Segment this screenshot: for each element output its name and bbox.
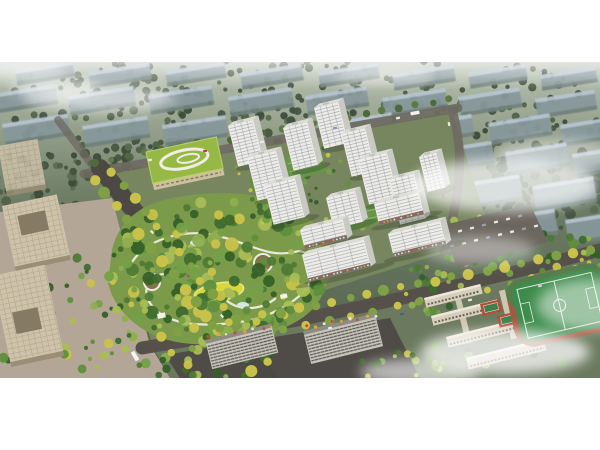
street-tree [430, 277, 440, 287]
tree [242, 242, 253, 253]
street-tree [312, 302, 321, 311]
tree [554, 123, 559, 128]
street-tree [220, 303, 228, 311]
shop-awning [263, 327, 266, 330]
tree [112, 306, 121, 315]
tree [124, 297, 130, 303]
street-tree [586, 245, 595, 254]
tree [69, 168, 77, 176]
street-tree [362, 290, 371, 299]
tree [228, 291, 235, 298]
street-tree [499, 262, 510, 273]
shop-awning [243, 330, 246, 333]
street-tree [347, 294, 355, 302]
tree [224, 215, 235, 226]
street-tree [517, 260, 525, 268]
tree [90, 302, 98, 310]
street-tree [397, 283, 404, 290]
street-tree [263, 358, 271, 366]
tree [581, 250, 587, 256]
tree [65, 284, 70, 289]
street-tree [189, 323, 199, 333]
tree [252, 263, 266, 277]
tree [191, 284, 197, 290]
shop-awning [314, 325, 317, 328]
tree [293, 240, 301, 248]
tree [246, 297, 252, 303]
tree [85, 270, 89, 274]
street-tree [168, 349, 176, 357]
tree [409, 302, 416, 309]
tree [410, 352, 416, 358]
tree [252, 235, 259, 242]
street-tree [394, 302, 402, 310]
tree [157, 323, 162, 328]
tree [429, 307, 437, 315]
street-tree [483, 267, 492, 276]
street-tree [145, 242, 157, 254]
street-tree [551, 251, 561, 261]
tree [565, 209, 576, 220]
tree [350, 109, 357, 116]
tree [73, 253, 82, 262]
tree [522, 102, 527, 107]
tree [87, 279, 95, 287]
tree [136, 297, 140, 301]
tree [208, 268, 216, 276]
street-tree [112, 201, 122, 211]
tree [291, 262, 297, 268]
tree [213, 253, 222, 262]
tree [303, 113, 308, 118]
street-tree [225, 318, 233, 326]
tree [271, 291, 277, 297]
street-tree [245, 365, 257, 377]
street-tree [141, 208, 150, 217]
tree [179, 112, 186, 119]
tree [78, 273, 85, 280]
tree [302, 179, 307, 184]
tree [189, 371, 197, 379]
tree [139, 261, 145, 267]
tree [64, 166, 68, 170]
tree [225, 251, 235, 261]
street-tree [445, 95, 452, 102]
tree [184, 327, 189, 332]
street-tree [411, 101, 418, 108]
tree [345, 181, 351, 187]
tree [88, 357, 92, 361]
street-tree [208, 321, 217, 330]
tree [559, 226, 563, 230]
tree [57, 163, 63, 169]
tree [326, 153, 331, 158]
shop-awning [366, 315, 369, 318]
street-tree [430, 100, 436, 106]
tree [299, 98, 304, 103]
tree [123, 258, 133, 268]
tree [414, 265, 421, 272]
street-tree [156, 255, 168, 267]
tree [132, 311, 141, 320]
shop-awning [225, 333, 227, 335]
street-tree [169, 269, 178, 278]
tree [590, 206, 598, 214]
tree [142, 307, 148, 313]
tree [286, 306, 295, 315]
tree [192, 234, 205, 247]
shop-awning [375, 315, 378, 318]
tree [117, 111, 123, 117]
tree [150, 267, 156, 273]
tree [112, 253, 117, 258]
tree [104, 271, 114, 281]
tree [84, 346, 88, 350]
tree [137, 362, 143, 368]
street-tree [164, 235, 172, 243]
tree [160, 357, 167, 364]
tree [266, 115, 272, 121]
tree [425, 265, 430, 270]
tree [326, 169, 332, 175]
tree [131, 287, 137, 293]
tree [580, 258, 584, 262]
street-tree [395, 105, 403, 113]
street-tree [568, 248, 578, 258]
tree [111, 144, 119, 152]
tree [359, 358, 365, 364]
street-tree [279, 325, 287, 333]
tree [309, 199, 313, 203]
tree [257, 208, 264, 215]
tree [148, 144, 153, 149]
tree [118, 246, 124, 252]
tree [185, 221, 194, 230]
street-tree [120, 181, 129, 190]
tree [151, 325, 157, 331]
street-tree [124, 153, 130, 159]
tree [195, 197, 206, 208]
tree [47, 153, 54, 160]
street-tree [447, 272, 455, 280]
street-tree [484, 287, 491, 294]
tree [69, 318, 76, 325]
shop-awning [323, 322, 326, 325]
tree [176, 223, 186, 233]
shop-awning [349, 317, 352, 320]
tree [307, 193, 310, 196]
tree [90, 339, 95, 344]
street-tree [130, 193, 141, 204]
street-tree [196, 277, 204, 285]
street-tree [463, 269, 474, 280]
tree [229, 276, 240, 287]
street-tree [90, 175, 100, 185]
tree [152, 274, 162, 284]
tree [545, 259, 550, 264]
street-tree [107, 168, 116, 177]
tree [284, 277, 290, 283]
tree [110, 351, 114, 355]
tree [145, 306, 158, 319]
tree [234, 214, 244, 224]
tree [250, 197, 255, 202]
street-tree [108, 157, 114, 163]
street-tree [378, 285, 389, 296]
shop-awning [270, 326, 272, 328]
tree [435, 270, 442, 277]
tree [99, 351, 108, 360]
tree [482, 128, 488, 134]
street-tree [156, 332, 166, 342]
tree [125, 143, 133, 151]
tree [294, 107, 302, 115]
tree [446, 302, 454, 310]
tree [249, 188, 253, 192]
tree [67, 297, 73, 303]
masterplan-scene [0, 0, 600, 450]
street-tree [207, 289, 218, 300]
tree [71, 152, 77, 158]
tree [253, 318, 261, 326]
tree [104, 339, 114, 349]
tree [211, 239, 220, 248]
tree [102, 312, 108, 318]
aerial-masterplan-rendering [0, 0, 600, 450]
tree [261, 222, 264, 225]
shop-awning [206, 335, 209, 338]
tree [208, 301, 220, 313]
tree [162, 365, 170, 373]
tree [458, 283, 464, 289]
tree [579, 236, 587, 244]
street-tree [189, 345, 196, 352]
tree [253, 283, 264, 294]
shop-awning [331, 320, 334, 323]
street-tree [188, 262, 195, 269]
street-tree [258, 310, 266, 318]
tree [127, 333, 132, 338]
tree [31, 111, 38, 118]
tree [122, 345, 130, 353]
tree [279, 257, 285, 263]
tree [140, 300, 148, 308]
tree [107, 113, 115, 121]
tree [214, 210, 223, 219]
tree [238, 172, 241, 175]
tree [178, 317, 185, 324]
tree [409, 267, 414, 272]
tree [83, 115, 89, 121]
street-tree [173, 327, 182, 336]
tree [250, 213, 256, 219]
tree [404, 292, 408, 296]
tree [262, 300, 270, 308]
tree [190, 210, 199, 219]
street-tree [200, 311, 212, 323]
shop-awning [234, 332, 237, 335]
tree [115, 338, 121, 344]
tree [314, 187, 317, 190]
street-tree [122, 215, 132, 225]
render-area [0, 57, 600, 386]
street-tree [276, 308, 286, 318]
shop-awning [305, 324, 308, 327]
tree [267, 257, 276, 266]
tree [141, 358, 151, 368]
tree [423, 279, 428, 284]
tree [290, 273, 300, 283]
tree [214, 368, 223, 377]
tree [164, 304, 169, 309]
tree [174, 294, 181, 301]
street-tree [243, 316, 250, 323]
tree [75, 160, 81, 166]
tree [164, 117, 171, 124]
tree [562, 119, 567, 124]
tree [184, 360, 193, 369]
shop-awning [356, 318, 359, 321]
shop-awning [217, 332, 220, 335]
tree [550, 117, 555, 122]
street-tree [294, 303, 304, 313]
tree [218, 228, 226, 236]
tree [396, 350, 402, 356]
tree [288, 249, 294, 255]
street-tree [132, 228, 144, 240]
tree [566, 233, 574, 241]
shop-awning [251, 328, 254, 331]
tree [94, 365, 99, 370]
tree [393, 354, 397, 358]
tree [338, 159, 342, 163]
street-tree [191, 296, 202, 307]
tree [128, 301, 134, 307]
street-tree [533, 254, 543, 264]
tree [314, 200, 319, 205]
mist-cloud [425, 236, 535, 264]
tree [263, 275, 275, 287]
tree [225, 237, 239, 251]
street-tree [98, 187, 110, 199]
tree [155, 372, 162, 379]
tree [183, 204, 190, 211]
tree [208, 260, 213, 265]
tree [103, 148, 109, 154]
street-tree [363, 110, 370, 117]
street-tree [153, 223, 161, 231]
street-tree [327, 298, 336, 307]
tree [446, 280, 451, 285]
street-tree [415, 298, 423, 306]
tree [230, 198, 239, 207]
tree [243, 306, 251, 314]
street-tree [90, 159, 99, 168]
street-tree [175, 248, 184, 257]
tree [78, 365, 87, 374]
tree [30, 194, 35, 199]
tree [548, 235, 555, 242]
tree [145, 292, 154, 301]
shop-awning [340, 320, 343, 323]
tree [119, 266, 124, 271]
street-tree [378, 107, 385, 114]
horizon-haze [0, 62, 600, 90]
tree [419, 274, 425, 280]
street-tree [180, 284, 191, 295]
tree [122, 315, 129, 322]
street-tree [414, 280, 422, 288]
